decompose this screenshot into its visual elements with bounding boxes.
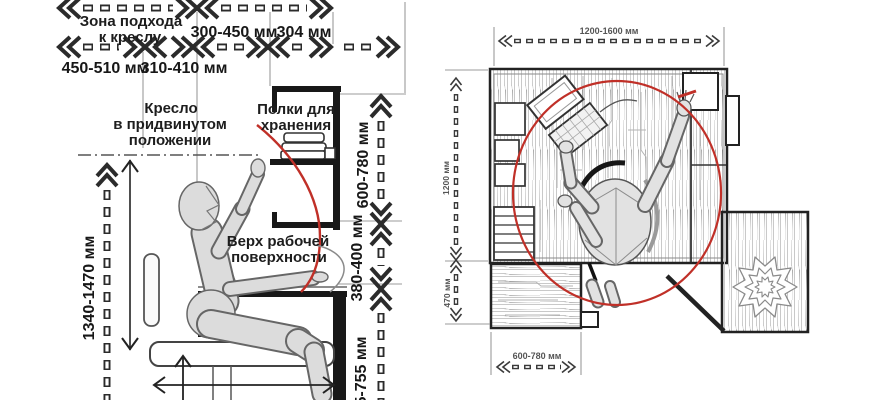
shelf-book [284,133,324,142]
shelf-book [282,143,326,151]
shelf-board [270,159,340,165]
shelves-label-line2: хранения [261,117,331,134]
hutch-top-bar [272,86,341,92]
dim-label-600-780: 600-780 мм [355,122,372,209]
shelves-label-line1: Полки для [257,101,335,118]
desk-shelf-box [495,140,519,161]
dim-label-470: 470 мм [442,278,452,307]
desk-side-tab [726,96,739,145]
chair-backrest [144,254,159,326]
plant-table [722,212,808,332]
left-diagram: Зона подхода к креслу 300-450 мм 304 мм … [59,0,406,400]
desk-shelf-box [495,164,525,186]
chair-label-line2: в придвинутом [113,116,227,133]
height-dimension-column [371,96,391,400]
right-diagram: 1200-1600 мм 1200 мм 470 мм 600-780 мм [441,26,808,375]
dim-label-304: 304 мм [277,24,332,41]
approach-zone-label-line1: Зона подхода [80,13,183,30]
approach-zone-label-line2: к креслу [99,29,162,46]
cabinet-side-tab [581,312,598,327]
dim-label-600-780: 600-780 мм [513,351,562,361]
shelf-box [325,148,335,159]
worktop-label-line1: Верх рабочей [227,233,329,250]
cabinet-outline [491,264,581,328]
dim-label-1340-1470: 1340-1470 мм [81,236,98,341]
lower-shelf-tick [272,212,277,228]
dim-label-desk-height: 5-755 мм [353,336,370,400]
figure-hand [558,195,572,207]
lower-shelf-board [272,222,340,228]
desk-shelf-box [495,103,525,135]
chair-label-line1: Кресло [144,100,197,117]
figure-hand-on-laptop [559,141,573,153]
dim-label-310-410: 310-410 мм [141,60,228,77]
chair-base-mark [589,263,596,281]
ergonomics-workspace-diagram: Зона подхода к креслу 300-450 мм 304 мм … [0,0,870,400]
dim-label-1200-1600: 1200-1600 мм [580,26,639,36]
dim-label-380-400: 380-400 мм [349,215,366,302]
worktop-label-line2: поверхности [231,249,327,266]
diagram-canvas: Зона подхода к креслу 300-450 мм 304 мм … [0,0,870,400]
figure-head [179,182,219,230]
dim-label-300-450: 300-450 мм [191,24,278,41]
dim-label-1200: 1200 мм [441,161,451,195]
chair-label-line3: положении [129,132,211,149]
reach-height-dimension [97,160,138,400]
figure-hand-reaching [251,159,265,177]
dim-label-450-510: 450-510 мм [62,60,149,77]
